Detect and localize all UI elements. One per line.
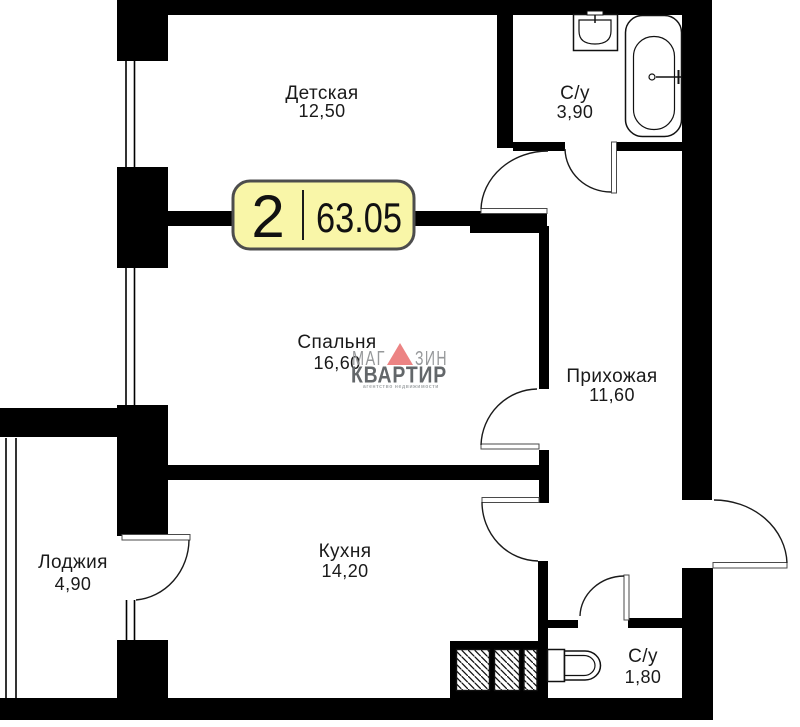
wall-segment [117,405,168,536]
room-area: 12,50 [298,101,345,121]
wall-segment [548,620,578,628]
wall-segment [0,408,118,437]
area-badge: 2 63.05 [233,181,414,250]
wall-segment [628,618,682,628]
floor-plan-canvas: Детская 12,50 С/у 3,90 Спальня 16,60 При… [0,0,800,727]
room-label-kitchen: Кухня 14,20 [319,541,372,581]
watermark-logo: МАГ ЗИН КВАРТИР агентство недвижимости [351,343,448,390]
wall-segment [617,142,682,151]
wall-segment [117,167,168,268]
room-area: 1,80 [625,667,662,687]
wall-segment [167,0,712,15]
room-name: Прихожая [566,366,657,387]
room-label-bathroom-large: С/у 3,90 [557,83,594,122]
wall-segment [0,698,713,720]
room-area: 3,90 [557,102,594,122]
room-area: 11,60 [589,385,635,405]
wall-segment [497,0,513,148]
watermark-tagline: агентство недвижимости [363,384,439,390]
vent-shaft-icon [457,650,538,691]
wall-segment [513,142,565,151]
toilet-icon [548,650,601,682]
floor-plan-drawing: Детская 12,50 С/у 3,90 Спальня 16,60 При… [0,0,800,727]
wall-segment [470,211,547,233]
wall-segment [539,226,549,389]
wall-segment [167,465,539,480]
badge-total-area: 63.05 [316,194,402,241]
room-name: Кухня [319,541,372,562]
sink-icon [574,11,618,51]
wall-segment [117,640,168,700]
bathtub-icon [626,16,683,137]
room-area: 14,20 [321,561,368,581]
wall-segment [539,450,549,503]
room-name: С/у [628,646,658,667]
wall-segment [682,0,712,500]
room-name: Лоджия [38,552,108,573]
room-area: 4,90 [55,574,92,594]
wall-segment [117,0,168,61]
badge-rooms-count: 2 [251,183,284,250]
room-name: С/у [560,83,590,104]
room-label-bathroom-small: С/у 1,80 [625,646,662,687]
wall-segment [682,568,713,720]
